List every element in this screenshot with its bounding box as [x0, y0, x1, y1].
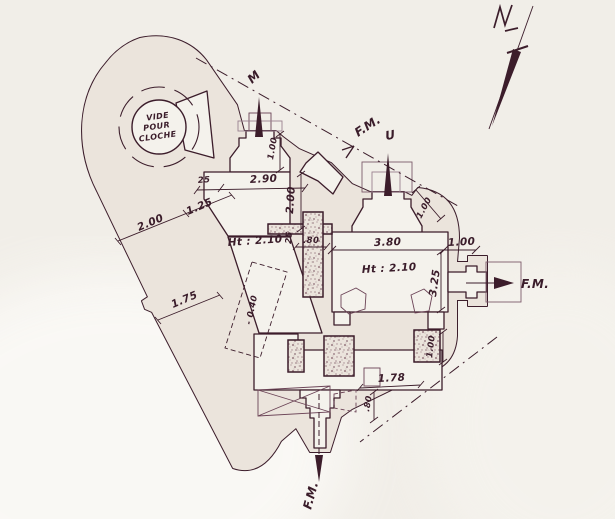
dim-80-door: .80	[303, 236, 319, 246]
dim-178: 1.78	[378, 372, 406, 385]
niche-2	[428, 312, 444, 329]
mark-fm-e: F.M.	[521, 277, 549, 291]
dim-200-v: 2.00	[284, 186, 298, 214]
blueprint-plan: VIDE POUR CLOCHE M F.M. U F.M. F.M. 25 2…	[0, 0, 615, 519]
niche-1	[334, 312, 350, 325]
dim-25-top: 25	[198, 175, 211, 186]
dim-380: 3.80	[374, 236, 402, 249]
plan-drawing: VIDE POUR CLOCHE M F.M. U F.M. F.M. 25 2…	[0, 0, 615, 519]
dim-25-mid: 25	[284, 231, 295, 244]
dim-100-e: 1.00	[448, 236, 476, 249]
dim-290: 2.90	[250, 173, 278, 186]
